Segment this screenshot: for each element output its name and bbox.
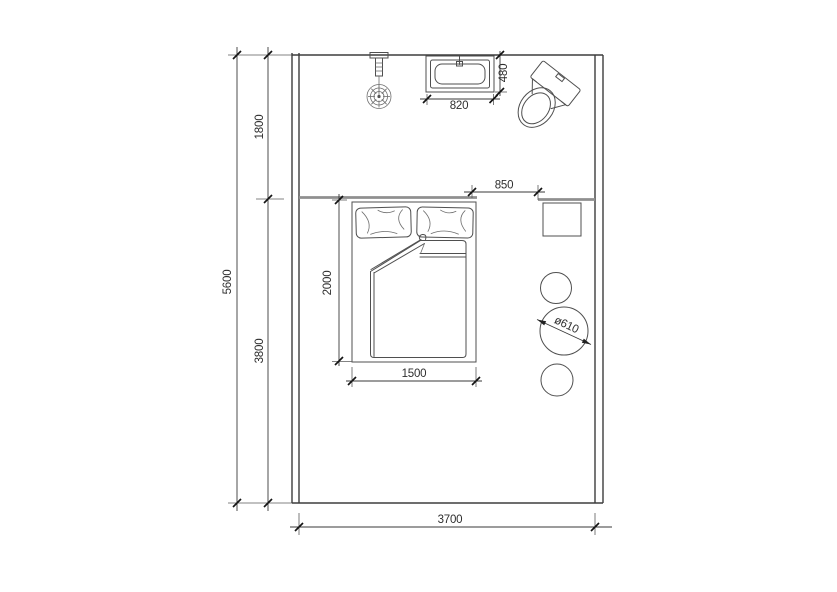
duvet (371, 234, 467, 357)
shower-head (367, 53, 391, 109)
floor-plan-canvas: 5600 1800 3800 (0, 0, 837, 592)
dimension-room-width: 3700 (290, 513, 612, 535)
dimension-total-depth: 5600 (222, 47, 241, 511)
dimension-bath-bedroom-depth: 1800 3800 (254, 47, 272, 511)
dimension-stool-diameter: ø610 (537, 314, 591, 344)
dim-label-room-width: 3700 (438, 514, 463, 526)
dim-label-total-depth: 5600 (222, 270, 234, 295)
floor-plan-drawing: 5600 1800 3800 (0, 0, 837, 592)
dim-label-sink-width: 820 (450, 100, 469, 112)
bed (352, 202, 476, 362)
dim-label-sink-depth: 480 (498, 64, 510, 83)
stool-bottom (541, 364, 573, 396)
sink (426, 56, 494, 92)
partition-lines (299, 198, 595, 200)
pillow-left (356, 207, 412, 238)
round-stools (540, 273, 588, 397)
round-table (540, 307, 588, 355)
dim-label-bath-depth: 1800 (254, 115, 266, 140)
dimension-bed-width: 1500 (346, 367, 482, 387)
dimension-bed-length: 2000 (322, 194, 352, 366)
dim-label-opening-width: 850 (495, 180, 514, 192)
toilet (505, 60, 581, 139)
stool-top (541, 273, 572, 304)
dim-label-bed-length: 2000 (322, 271, 334, 296)
dim-label-bed-width: 1500 (402, 368, 427, 380)
pillow-right (417, 207, 474, 238)
dim-label-bedroom-depth: 3800 (254, 339, 266, 364)
dimension-sink-depth: 480 (495, 51, 510, 96)
dimension-sink-width: 820 (420, 94, 500, 112)
side-table (543, 203, 581, 236)
